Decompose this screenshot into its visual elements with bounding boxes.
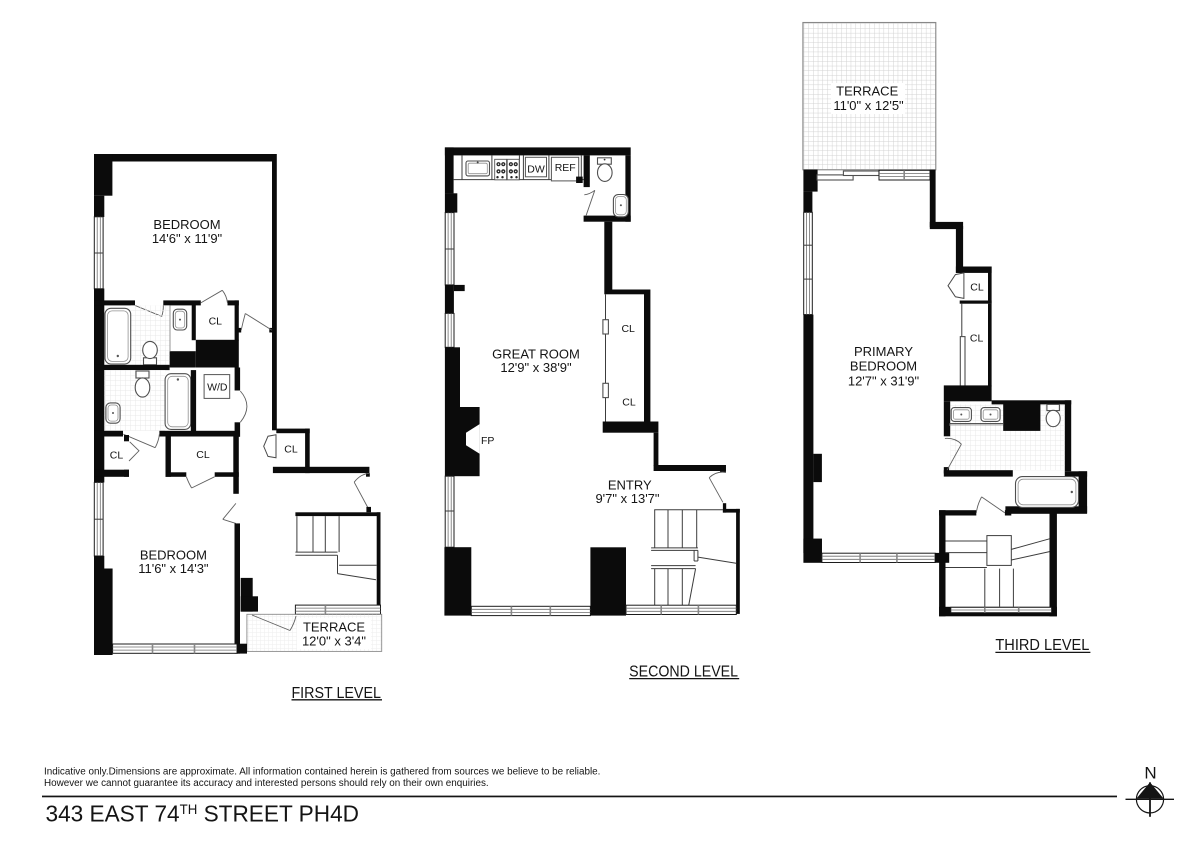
svg-text:W/D: W/D [207, 382, 228, 394]
svg-text:BEDROOM: BEDROOM [850, 359, 917, 374]
svg-text:11'0" x 12'5": 11'0" x 12'5" [833, 98, 904, 113]
svg-text:CL: CL [196, 449, 210, 461]
svg-text:343 EAST 74TH STREET PH4D: 343 EAST 74TH STREET PH4D [46, 801, 360, 827]
svg-text:11'6" x 14'3": 11'6" x 14'3" [138, 561, 209, 576]
svg-text:CL: CL [284, 444, 298, 456]
svg-text:CL: CL [970, 332, 984, 344]
svg-text:FP: FP [481, 435, 494, 447]
svg-text:CL: CL [209, 315, 223, 327]
svg-text:CL: CL [621, 323, 635, 335]
svg-text:12'7" x 31'9": 12'7" x 31'9" [848, 374, 920, 389]
svg-text:However we cannot guarantee it: However we cannot guarantee its accuracy… [44, 778, 489, 789]
svg-text:CL: CL [970, 281, 984, 293]
svg-text:THIRD LEVEL: THIRD LEVEL [995, 637, 1089, 654]
svg-text:Indicative only.Dimensions are: Indicative only.Dimensions are approxima… [44, 766, 600, 777]
svg-text:12'0" x 3'4": 12'0" x 3'4" [302, 634, 366, 649]
svg-text:9'7" x 13'7": 9'7" x 13'7" [595, 491, 659, 506]
svg-text:14'6" x 11'9": 14'6" x 11'9" [152, 231, 223, 246]
svg-text:TERRACE: TERRACE [303, 619, 365, 634]
svg-text:CL: CL [110, 450, 124, 462]
svg-text:CL: CL [622, 396, 636, 408]
svg-text:N: N [1144, 763, 1156, 782]
svg-text:DW: DW [527, 163, 545, 175]
svg-text:12'9" x 38'9": 12'9" x 38'9" [500, 360, 572, 375]
svg-text:REF: REF [555, 162, 576, 174]
svg-text:PRIMARY: PRIMARY [854, 344, 913, 359]
svg-text:TERRACE: TERRACE [836, 84, 898, 99]
